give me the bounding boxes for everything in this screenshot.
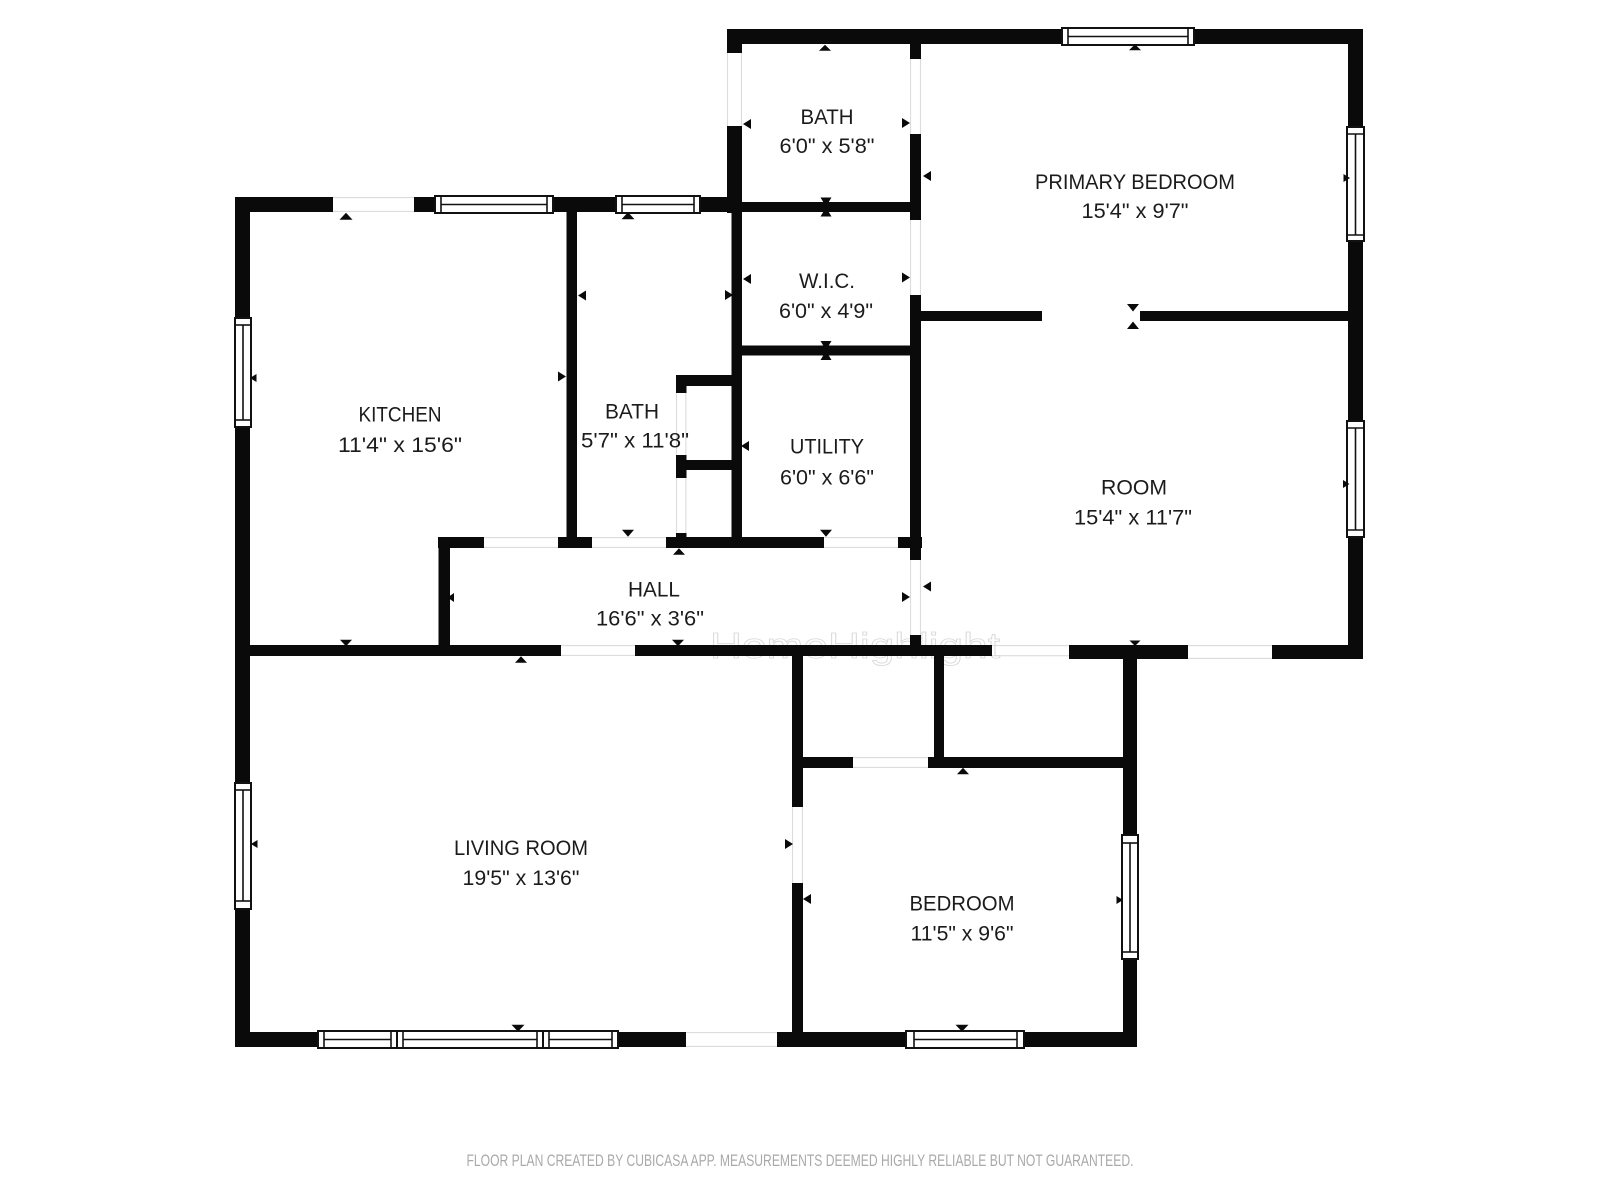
svg-text:KITCHEN: KITCHEN <box>359 403 442 427</box>
svg-text:19'5" x 13'6": 19'5" x 13'6" <box>463 866 580 890</box>
svg-text:11'5" x 9'6": 11'5" x 9'6" <box>911 922 1014 946</box>
svg-text:16'6" x 3'6": 16'6" x 3'6" <box>596 607 704 631</box>
svg-text:6'0" x 6'6": 6'0" x 6'6" <box>780 466 874 490</box>
svg-text:UTILITY: UTILITY <box>790 435 864 459</box>
svg-text:W.I.C.: W.I.C. <box>799 269 855 293</box>
svg-text:11'4" x 15'6": 11'4" x 15'6" <box>338 433 462 457</box>
svg-text:LIVING ROOM: LIVING ROOM <box>454 836 588 860</box>
svg-text:ROOM: ROOM <box>1101 476 1167 500</box>
svg-text:5'7" x 11'8": 5'7" x 11'8" <box>581 429 689 453</box>
svg-text:HALL: HALL <box>628 578 680 602</box>
svg-text:15'4" x 9'7": 15'4" x 9'7" <box>1082 199 1189 223</box>
svg-text:PRIMARY BEDROOM: PRIMARY BEDROOM <box>1035 170 1235 194</box>
svg-text:6'0" x 4'9": 6'0" x 4'9" <box>779 299 873 323</box>
svg-text:15'4" x 11'7": 15'4" x 11'7" <box>1074 506 1192 530</box>
svg-text:6'0" x 5'8": 6'0" x 5'8" <box>780 134 875 158</box>
svg-text:FLOOR PLAN CREATED BY CUBICASA: FLOOR PLAN CREATED BY CUBICASA APP. MEAS… <box>467 1151 1134 1170</box>
svg-text:BATH: BATH <box>605 400 659 424</box>
svg-text:BATH: BATH <box>801 105 854 129</box>
svg-text:BEDROOM: BEDROOM <box>910 892 1015 916</box>
